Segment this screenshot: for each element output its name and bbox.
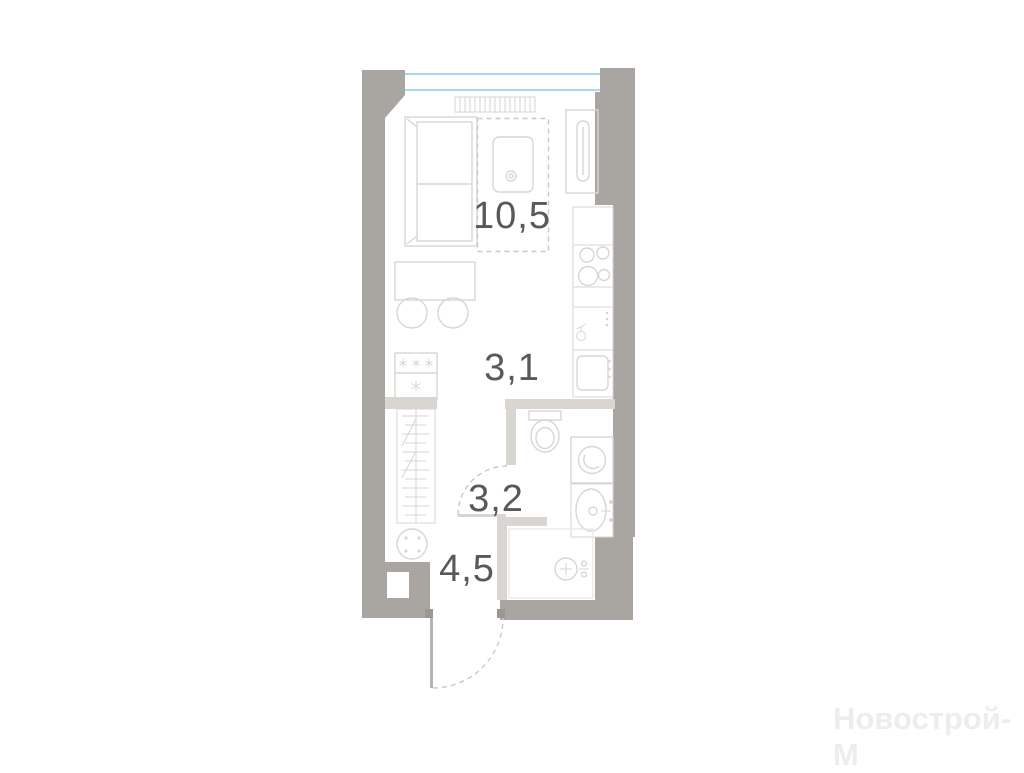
dining-table-icon <box>395 262 475 328</box>
kitchen-tap-icon <box>577 312 609 341</box>
room-label-bathroom: 3,2 <box>450 480 542 518</box>
room-label-corridor: 3,1 <box>466 349 558 387</box>
kitchen-sink-icon <box>577 356 611 390</box>
tall-cabinet-fridge-icon <box>566 110 598 193</box>
watermark-text: Новострой-М <box>833 701 1024 773</box>
refrigerator-icon <box>395 353 437 400</box>
stool-icon <box>438 298 468 328</box>
four-burner-hob-icon <box>579 247 610 286</box>
shower-mixer-icon <box>509 529 593 598</box>
stool-icon <box>397 298 427 328</box>
kitchen-counter <box>573 207 613 397</box>
freezer-snowflakes-icon <box>400 359 433 391</box>
radiator-icon <box>455 97 535 112</box>
washing-machine-icon <box>571 437 613 483</box>
room-label-hallway: 4,5 <box>421 550 513 588</box>
armchair-icon <box>493 137 533 192</box>
toilet-icon <box>529 403 561 452</box>
room-label-living: 10,5 <box>466 197 558 235</box>
entry-door-swing-icon <box>433 618 503 688</box>
wardrobe-hangers-icon <box>397 409 435 523</box>
floor-plan: 10,5 3,1 3,2 4,5 Новострой-М <box>0 0 1024 768</box>
